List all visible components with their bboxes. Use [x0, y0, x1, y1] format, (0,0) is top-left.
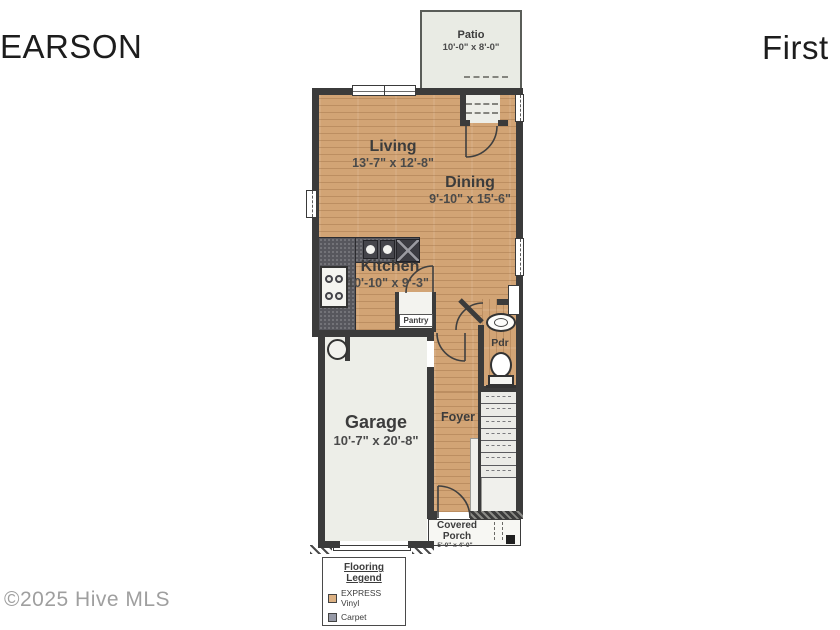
vinyl-label: EXPRESS Vinyl: [341, 588, 400, 608]
kitchen-dims: 10'-10" x 9'-3": [347, 276, 429, 290]
porch-label-line2: Porch: [443, 531, 471, 542]
living-label: Living: [369, 138, 416, 156]
wall-garage-bottom-left: [318, 541, 340, 548]
wall-garage-bottom-right: [408, 541, 434, 548]
carpet-label: Carpet: [341, 612, 367, 622]
porch-dims: 5'-0" x 4'-0": [437, 542, 472, 549]
garage-door: [333, 545, 411, 551]
garage-dims: 10'-7" x 20'-8": [333, 433, 418, 448]
legend-item-vinyl: EXPRESS Vinyl: [328, 588, 400, 608]
plan-title-left: EARSON: [0, 28, 142, 66]
dining-dims: 9'-10" x 15'-6": [429, 192, 511, 206]
patio-door-dash: [464, 76, 508, 78]
mls-watermark: ©2025 Hive MLS: [4, 588, 170, 612]
floor-plan-page: EARSON First ©2025 Hive MLS: [0, 0, 840, 630]
kitchen-label: Kitchen: [361, 258, 420, 276]
pantry-label: Pantry: [399, 314, 433, 327]
dining-label: Dining: [445, 174, 495, 192]
carpet-swatch: [328, 613, 337, 622]
flooring-legend: Flooring Legend EXPRESS Vinyl Carpet: [322, 557, 406, 626]
porch-label-line1: Covered: [437, 520, 477, 531]
powder-label: Pdr: [491, 337, 509, 349]
legend-title-line1: Flooring: [328, 562, 400, 573]
living-dims: 13'-7" x 12'-8": [352, 156, 434, 170]
legend-title-line2: Legend: [328, 573, 400, 584]
plan-title-right: First: [762, 29, 829, 67]
foyer-label: Foyer: [441, 410, 475, 424]
vinyl-swatch: [328, 594, 337, 603]
patio-label: Patio: [458, 29, 485, 41]
patio-dims: 10'-0" x 8'-0": [443, 42, 500, 53]
garage-label: Garage: [345, 412, 407, 433]
legend-item-carpet: Carpet: [328, 612, 400, 622]
